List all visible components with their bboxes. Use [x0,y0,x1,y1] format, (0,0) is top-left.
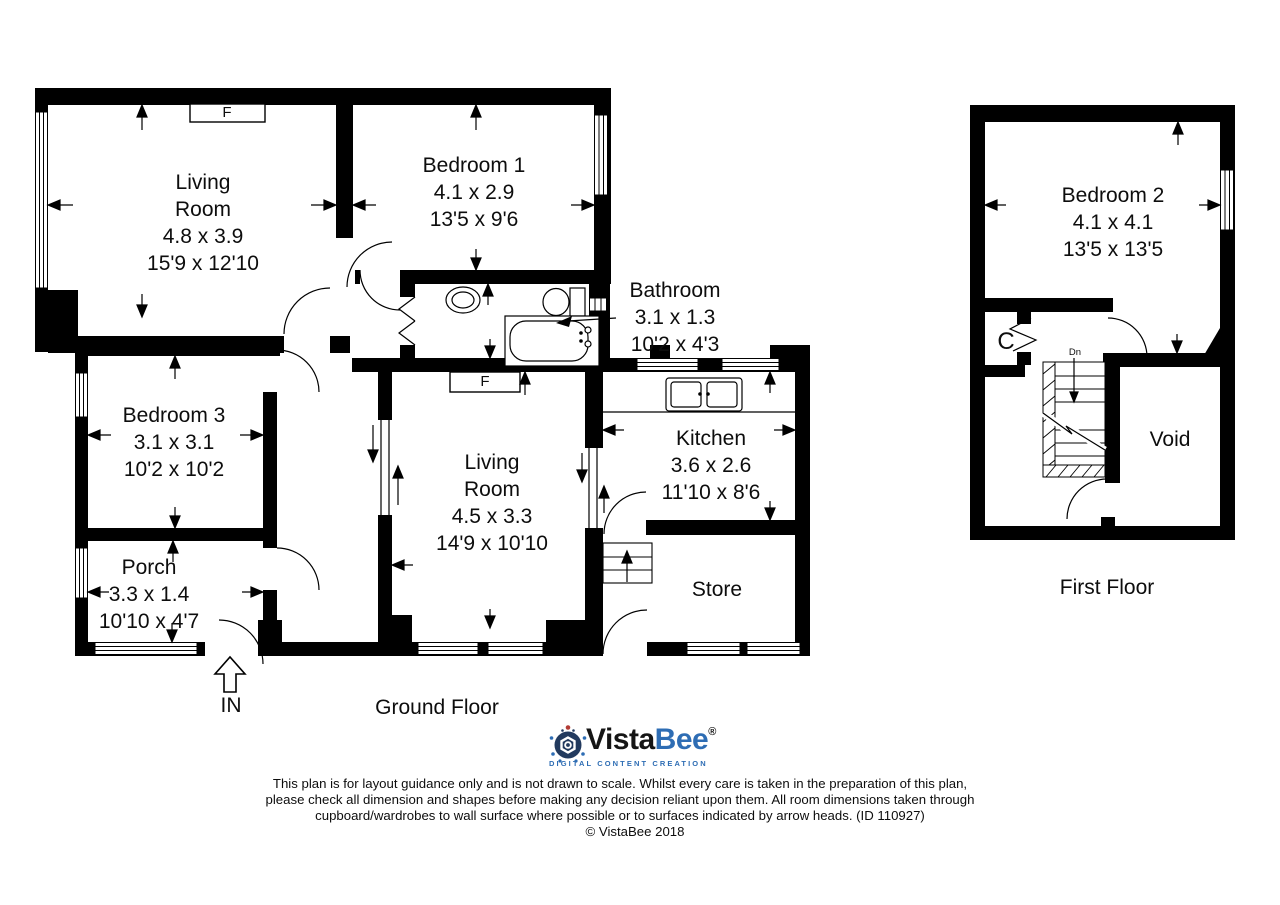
first-floor-window [1221,170,1234,230]
entrance-arrow-icon [215,657,245,692]
room-dim-imperial: 10'2 x 4'3 [629,331,720,358]
logo-bee-text: Bee [655,723,709,756]
room-dim-metric: 4.1 x 4.1 [1062,209,1165,236]
vistabee-wordmark: VistaBee® [586,723,716,757]
disclaimer-line-3: cupboard/wardrobes to wall surface where… [0,808,1240,824]
copyright-text: © VistaBee 2018 [0,824,1270,840]
room-name: Living [147,169,259,196]
cupboard-label: C [997,330,1014,354]
room-dim-imperial: 15'9 x 12'10 [147,250,259,277]
registered-trademark-symbol: ® [708,726,716,738]
room-label-porch: Porch 3.3 x 1.4 10'10 x 4'7 [99,554,199,635]
room-name: Store [692,576,742,603]
entrance-label: IN [221,694,242,718]
room-dim-metric: 3.1 x 3.1 [123,429,226,456]
room-dim-metric: 4.5 x 3.3 [436,503,548,530]
room-name: Kitchen [662,425,761,452]
stairs-down-label: Dn [1069,348,1081,358]
fireplace-label-living-room-1: F [222,104,231,122]
room-dim-imperial: 14'9 x 10'10 [436,530,548,557]
room-name: Bedroom 2 [1062,182,1165,209]
room-dim-imperial: 13'5 x 13'5 [1062,236,1165,263]
room-dim-metric: 4.1 x 2.9 [423,179,526,206]
first-floor-title: First Floor [1060,576,1155,600]
room-label-kitchen: Kitchen 3.6 x 2.6 11'10 x 8'6 [662,425,761,506]
room-name: Bedroom 3 [123,402,226,429]
room-name: Living [436,449,548,476]
room-label-living-room-2: Living Room 4.5 x 3.3 14'9 x 10'10 [436,449,548,557]
room-name: Room [147,196,259,223]
floor-plan-canvas: Living Room 4.8 x 3.9 15'9 x 12'10 Bedro… [0,0,1280,905]
room-dim-imperial: 11'10 x 8'6 [662,479,761,506]
room-dim-metric: 3.6 x 2.6 [662,452,761,479]
room-label-bedroom-1: Bedroom 1 4.1 x 2.9 13'5 x 9'6 [423,152,526,233]
bathroom-fixtures [446,287,599,366]
room-label-living-room-1: Living Room 4.8 x 3.9 15'9 x 12'10 [147,169,259,277]
room-label-bedroom-3: Bedroom 3 3.1 x 3.1 10'2 x 10'2 [123,402,226,483]
disclaimer-text: This plan is for layout guidance only an… [0,776,1240,824]
disclaimer-line-1: This plan is for layout guidance only an… [0,776,1240,792]
room-name: Bathroom [629,277,720,304]
logo-vista-text: Vista [586,723,655,756]
room-name: Void [1150,426,1191,453]
ground-floor-title: Ground Floor [375,696,499,720]
first-floor-plan [970,105,1235,540]
room-label-bedroom-2: Bedroom 2 4.1 x 4.1 13'5 x 13'5 [1062,182,1165,263]
vistabee-logo: VistaBee® DIGITAL CONTENT CREATION [548,721,718,771]
logo-tagline: DIGITAL CONTENT CREATION [549,759,708,768]
fireplace-label-living-room-2: F [480,373,489,391]
room-dim-metric: 3.1 x 1.3 [629,304,720,331]
room-dim-metric: 4.8 x 3.9 [147,223,259,250]
room-name: Bedroom 1 [423,152,526,179]
room-label-bathroom: Bathroom 3.1 x 1.3 10'2 x 4'3 [629,277,720,358]
room-dim-imperial: 10'2 x 10'2 [123,456,226,483]
room-name: Porch [99,554,199,581]
room-name: Room [436,476,548,503]
room-label-store: Store [692,576,742,603]
disclaimer-line-2: please check all dimension and shapes be… [0,792,1240,808]
room-dim-imperial: 13'5 x 9'6 [423,206,526,233]
room-dim-metric: 3.3 x 1.4 [99,581,199,608]
room-dim-imperial: 10'10 x 4'7 [99,608,199,635]
room-label-void: Void [1150,426,1191,453]
